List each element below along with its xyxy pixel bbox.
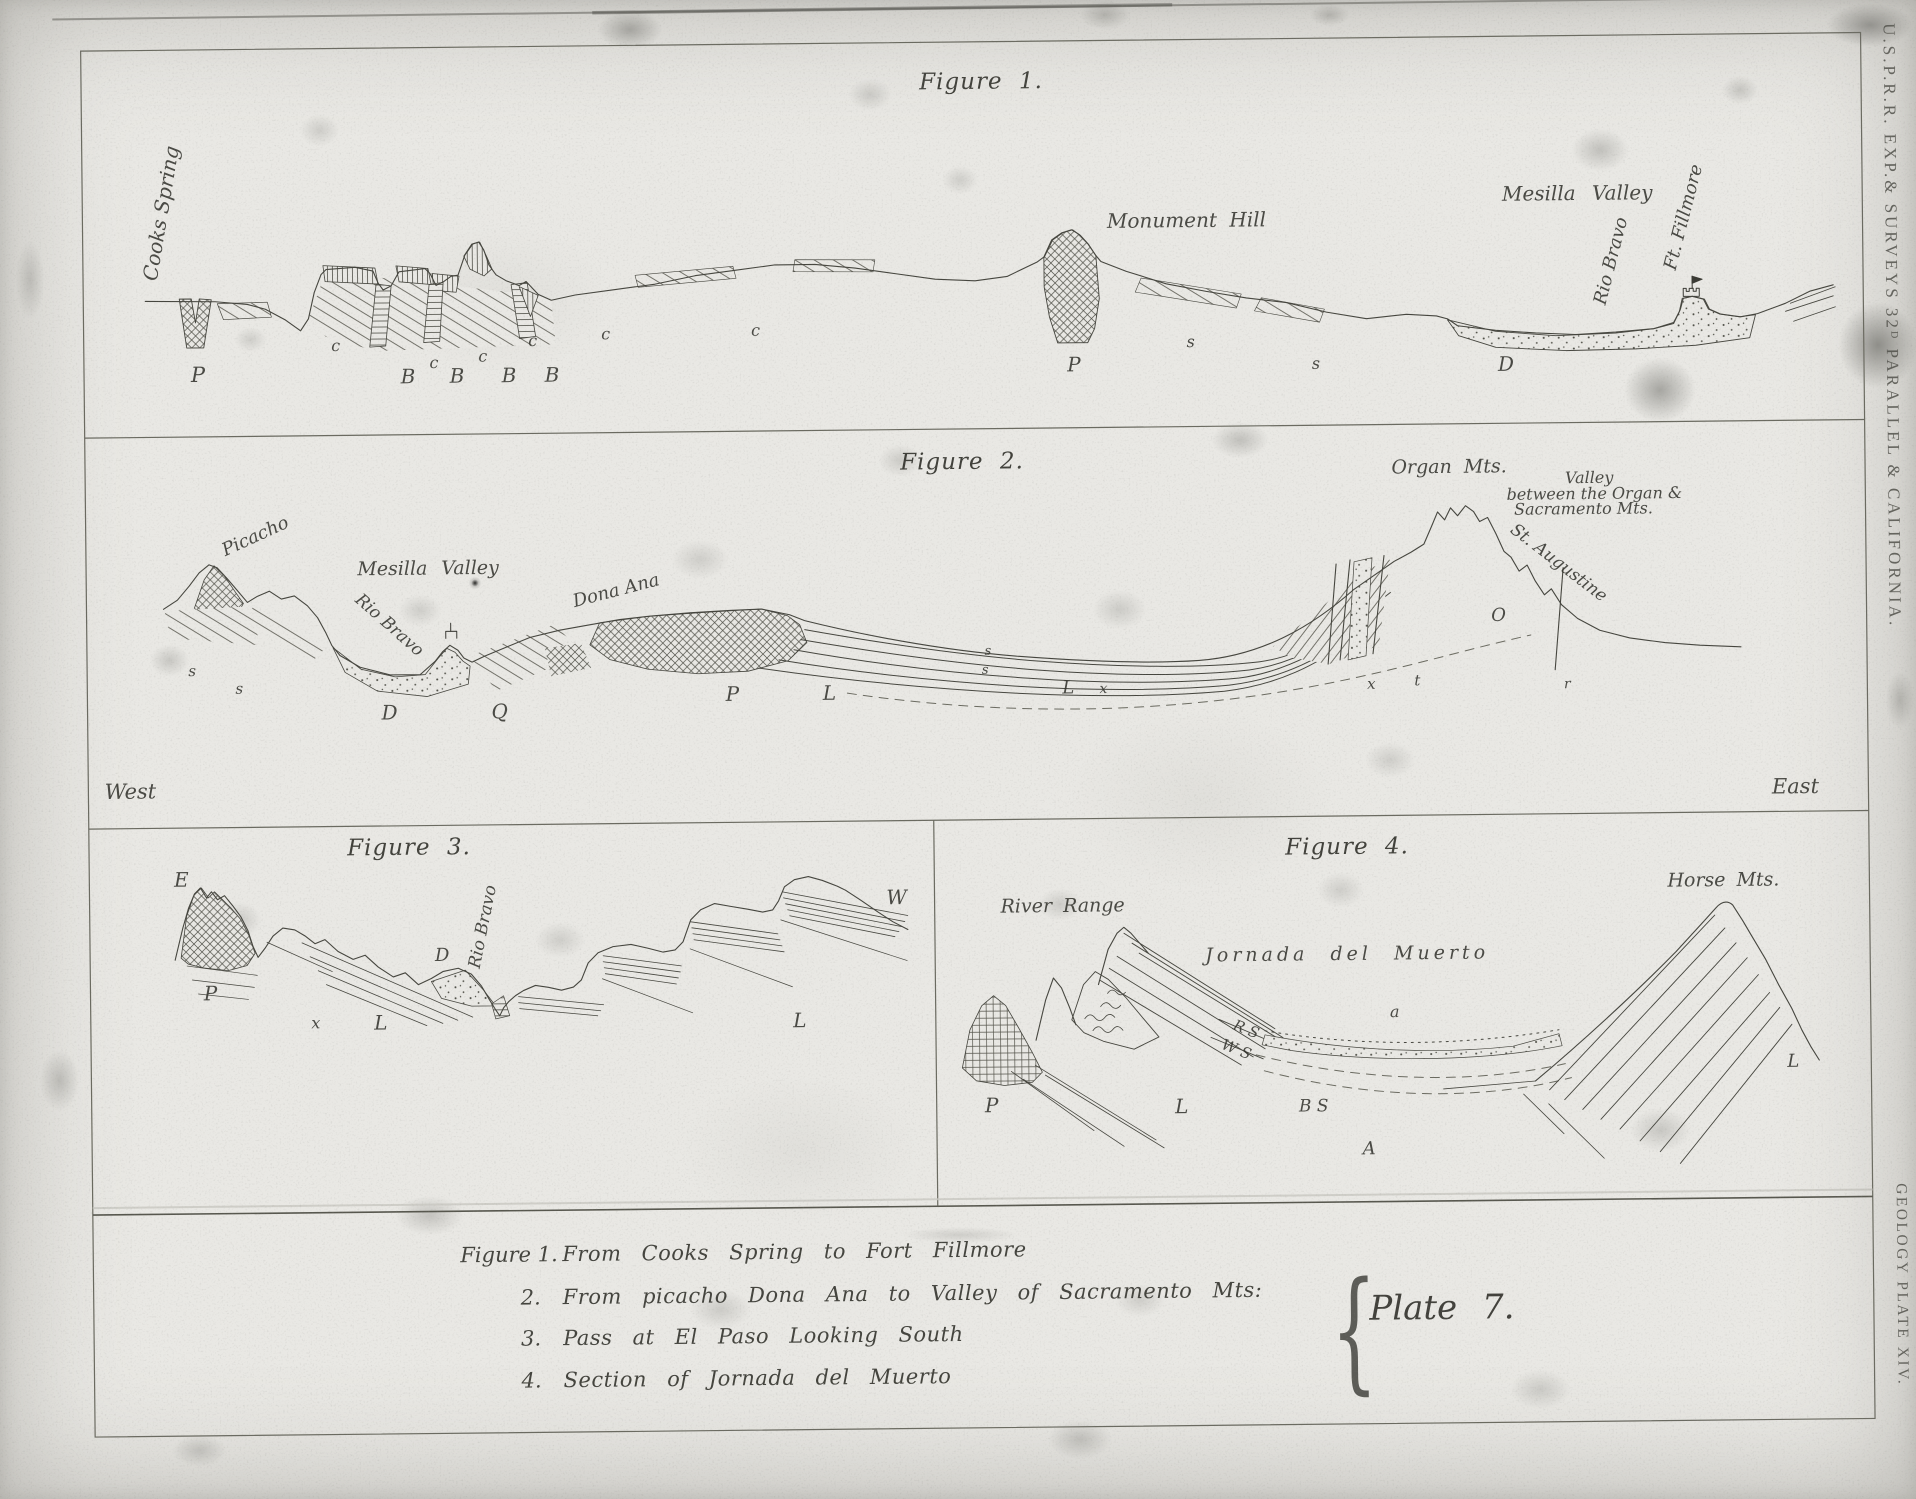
fort-fillmore-icon (1683, 276, 1702, 296)
strata-letter: B (450, 366, 465, 387)
west-label: West (105, 779, 157, 804)
figure3-title: Figure 3. (347, 834, 471, 861)
figure2-title: Figure 2. (900, 448, 1024, 475)
strata-letter: s (982, 664, 989, 678)
figure1-title: Figure 1. (919, 68, 1043, 95)
strata-letter: P (204, 983, 218, 1004)
strata-letter: t (1414, 673, 1420, 689)
label-river-range: River Range (1000, 896, 1124, 917)
label-valley-line3: Sacramento Mts. (1514, 500, 1653, 518)
plate-number-label: Plate 7. (1369, 1287, 1514, 1329)
caption-number: 2. (461, 1285, 541, 1310)
strata-letter: B (545, 365, 560, 386)
label-jornada-del-muerto: Jornada del Muerto (1205, 943, 1489, 966)
strata-letter: D (435, 947, 450, 966)
strata-letter: P (985, 1095, 999, 1116)
strata-letter: W (886, 887, 907, 908)
strata-letter: L (1062, 679, 1074, 698)
strata-letter: D (381, 702, 397, 723)
east-label: East (1772, 774, 1819, 798)
strata-letter: L (1175, 1096, 1189, 1117)
plate-brace: { (1330, 1254, 1378, 1408)
figure4-title: Figure 4. (1285, 833, 1409, 860)
strata-letter: s (235, 682, 243, 698)
label-organ-mts: Organ Mts. (1391, 457, 1507, 478)
strata-letter: P (726, 684, 740, 705)
strata-letter: Q (491, 701, 508, 722)
figure1-cross-section (145, 222, 1836, 366)
label-monument-hill: Monument Hill (1107, 209, 1266, 232)
plate-scan: Figure 1. Figure 2. Figure 3. Figure 4. … (0, 0, 1916, 1499)
strata-letter: P (1067, 354, 1081, 375)
strata-letter: B (401, 366, 416, 387)
caption-text: Section of Jornada del Muerto (563, 1364, 951, 1392)
strata-letter: B S (1299, 1098, 1329, 1116)
strata-letter: O (1491, 607, 1506, 626)
strata-letter: c (601, 326, 610, 343)
strata-letter: c (331, 338, 340, 355)
strata-letter: x (311, 1015, 320, 1032)
strata-letter: L (374, 1012, 388, 1033)
tilted-plate-content: Figure 1. Figure 2. Figure 3. Figure 4. … (0, 0, 1916, 1499)
strata-letter: x (1099, 682, 1107, 697)
strata-letter: E (174, 870, 189, 891)
strata-letter: c (429, 355, 438, 372)
label-horse-mts: Horse Mts. (1667, 870, 1779, 891)
strata-letter: c (528, 333, 537, 350)
strata-letter: L (793, 1010, 807, 1031)
strata-letter: s (1312, 356, 1320, 373)
geology-plate-margin-text: GEOLOGY PLATE XIV. (1892, 1183, 1912, 1386)
strata-letter: c (751, 323, 760, 340)
dona-ana-building-icon (446, 623, 457, 638)
strata-letter: D (1498, 354, 1514, 375)
label-mesilla-valley-fig1: Mesilla Valley (1502, 182, 1653, 205)
caption-number: 3. (461, 1326, 541, 1351)
strata-letter: x (1367, 677, 1376, 693)
strata-letter: r (1564, 677, 1571, 692)
label-mesilla-valley-fig2: Mesilla Valley (357, 559, 499, 580)
strata-letter: s (188, 664, 196, 680)
strata-letter: s (1187, 334, 1195, 351)
strata-letter: A (1363, 1140, 1376, 1159)
caption-number: 4. (461, 1368, 541, 1393)
strata-letter: s (985, 645, 992, 659)
caption-text: Pass at El Paso Looking South (563, 1322, 964, 1350)
strata-letter: a (1390, 1004, 1400, 1021)
strata-letter: L (823, 683, 837, 704)
caption-text: From Cooks Spring to Fort Fillmore (562, 1237, 1027, 1266)
figure3-cross-section (174, 876, 908, 1029)
strata-letter: B (502, 365, 517, 386)
strata-letter: c (478, 349, 487, 366)
strata-letter: L (1787, 1053, 1799, 1072)
caption-number: Figure 1. (460, 1242, 540, 1267)
strata-letter: P (191, 364, 205, 386)
